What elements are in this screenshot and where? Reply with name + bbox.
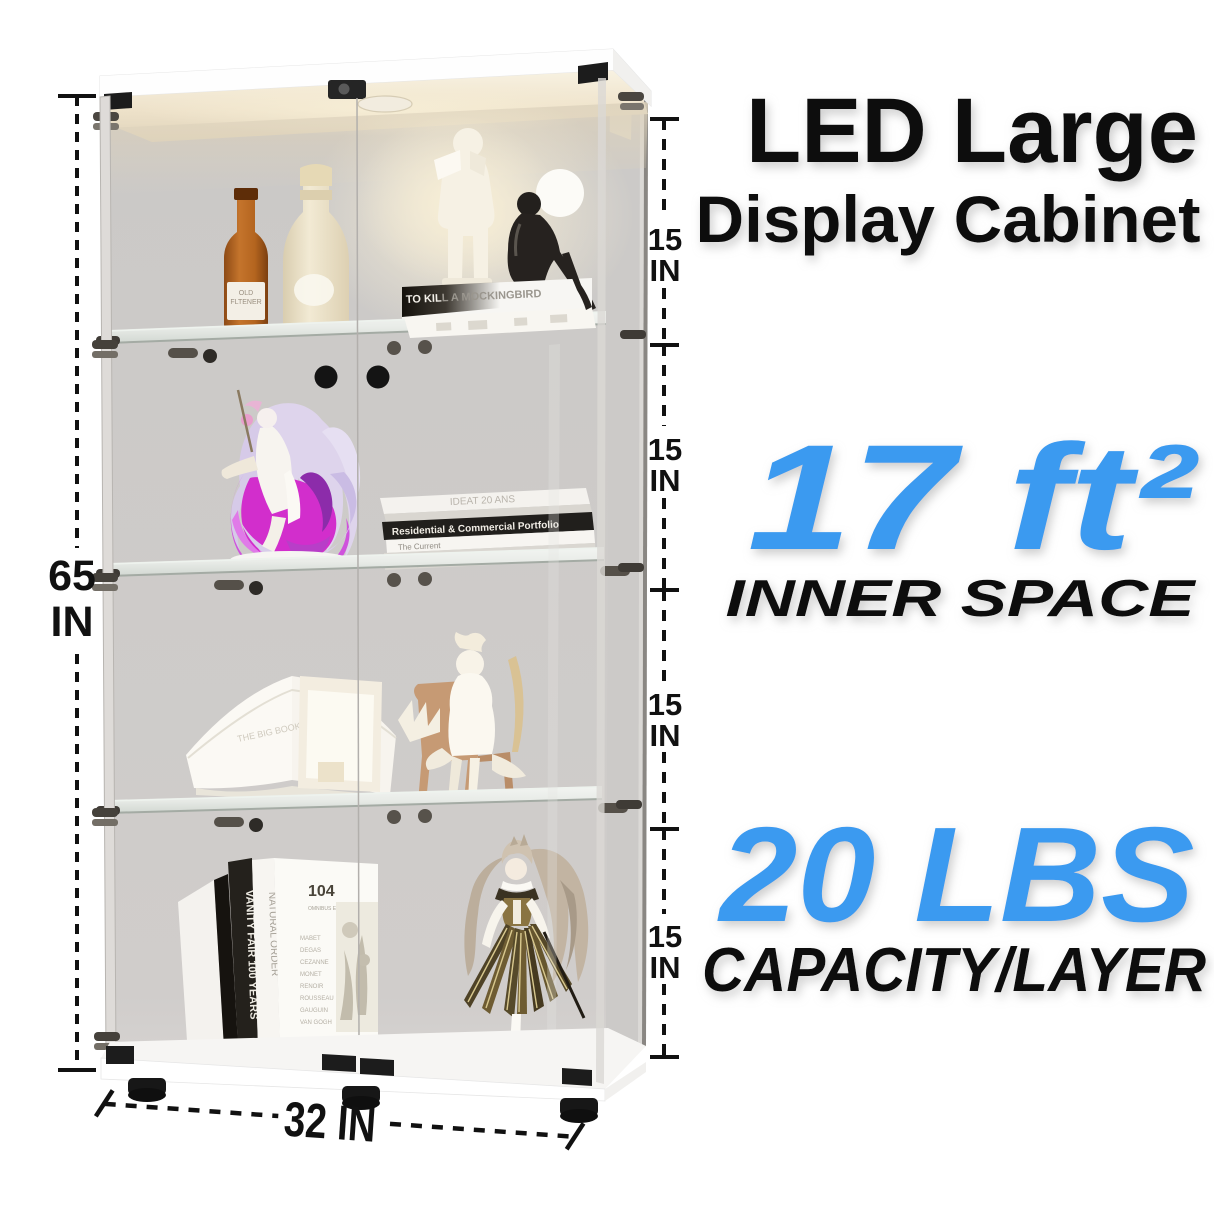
svg-text:CAPACITY/LAYER: CAPACITY/LAYER [702,936,1206,1005]
svg-text:15: 15 [648,687,682,722]
svg-text:MABET: MABET [300,936,321,942]
svg-text:IN: IN [650,463,681,498]
svg-text:ROUSSEAU: ROUSSEAU [300,996,334,1002]
svg-text:VAN GOGH: VAN GOGH [300,1020,332,1026]
svg-text:IN: IN [650,718,681,753]
svg-text:104: 104 [308,883,335,900]
svg-text:IN: IN [650,950,681,985]
svg-text:OLD: OLD [239,290,253,297]
svg-text:65: 65 [48,552,96,600]
svg-text:Display Cabinet: Display Cabinet [696,182,1201,256]
svg-text:LED Large: LED Large [746,80,1198,182]
svg-text:GAUGUIN: GAUGUIN [300,1008,328,1014]
svg-text:IN: IN [51,598,94,646]
svg-text:17 ft²: 17 ft² [748,413,1200,581]
svg-text:32 IN: 32 IN [282,1093,378,1153]
svg-text:RENOIR: RENOIR [300,984,324,990]
svg-text:15: 15 [648,222,682,257]
svg-text:MONET: MONET [300,972,322,978]
svg-text:20 LBS: 20 LBS [716,799,1194,950]
svg-text:INNER SPACE: INNER SPACE [726,570,1197,628]
svg-text:15: 15 [648,432,682,467]
svg-text:DEGAS: DEGAS [300,948,321,954]
svg-text:IN: IN [650,253,681,288]
svg-text:15: 15 [648,919,682,954]
svg-text:CEZANNE: CEZANNE [300,960,329,966]
svg-text:FLTENER: FLTENER [230,299,261,306]
